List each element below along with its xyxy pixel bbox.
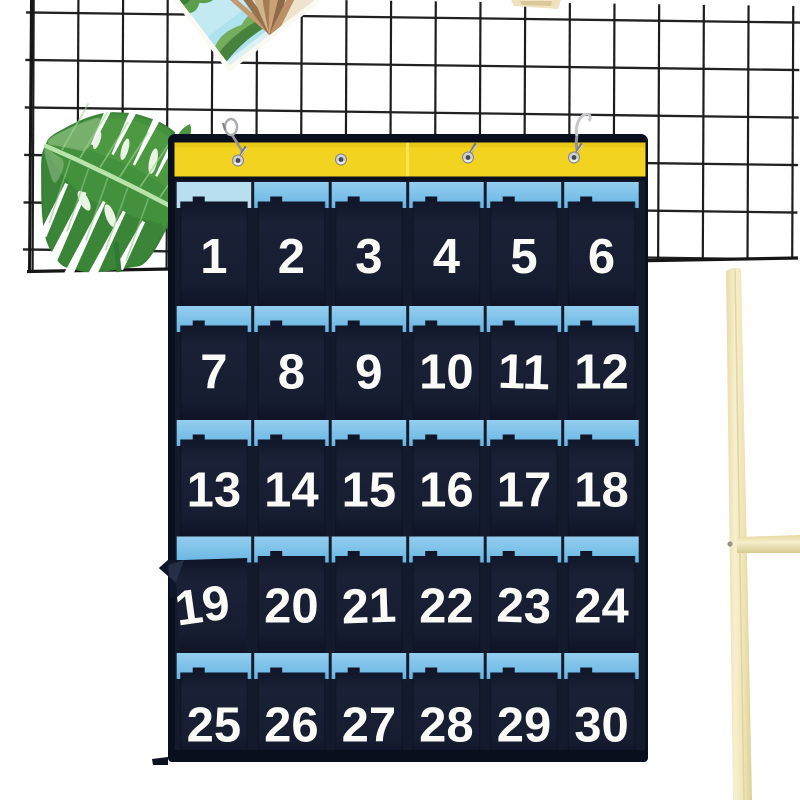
svg-text:30: 30 bbox=[574, 699, 629, 753]
svg-text:1: 1 bbox=[200, 230, 227, 284]
svg-text:23: 23 bbox=[496, 579, 552, 635]
svg-text:15: 15 bbox=[342, 464, 397, 518]
svg-text:8: 8 bbox=[278, 346, 305, 400]
svg-text:24: 24 bbox=[574, 580, 629, 634]
svg-text:14: 14 bbox=[264, 464, 319, 518]
svg-text:6: 6 bbox=[588, 230, 615, 284]
svg-text:4: 4 bbox=[433, 230, 460, 284]
svg-text:3: 3 bbox=[355, 230, 382, 284]
svg-text:9: 9 bbox=[354, 345, 383, 400]
svg-text:2: 2 bbox=[278, 230, 305, 284]
svg-text:10: 10 bbox=[419, 346, 474, 400]
svg-text:28: 28 bbox=[419, 699, 474, 753]
svg-text:7: 7 bbox=[200, 346, 227, 400]
svg-text:26: 26 bbox=[264, 699, 319, 753]
svg-text:21: 21 bbox=[341, 579, 397, 635]
svg-text:11: 11 bbox=[497, 345, 551, 401]
svg-text:29: 29 bbox=[497, 699, 552, 753]
svg-text:22: 22 bbox=[419, 580, 474, 634]
svg-text:12: 12 bbox=[574, 346, 629, 400]
svg-text:27: 27 bbox=[342, 699, 397, 753]
svg-text:25: 25 bbox=[187, 699, 242, 753]
svg-text:20: 20 bbox=[264, 580, 319, 634]
svg-text:19: 19 bbox=[172, 576, 234, 637]
svg-text:13: 13 bbox=[187, 464, 242, 518]
svg-text:16: 16 bbox=[419, 464, 474, 518]
svg-text:18: 18 bbox=[574, 464, 629, 518]
svg-text:17: 17 bbox=[497, 464, 552, 518]
svg-text:5: 5 bbox=[510, 230, 537, 284]
